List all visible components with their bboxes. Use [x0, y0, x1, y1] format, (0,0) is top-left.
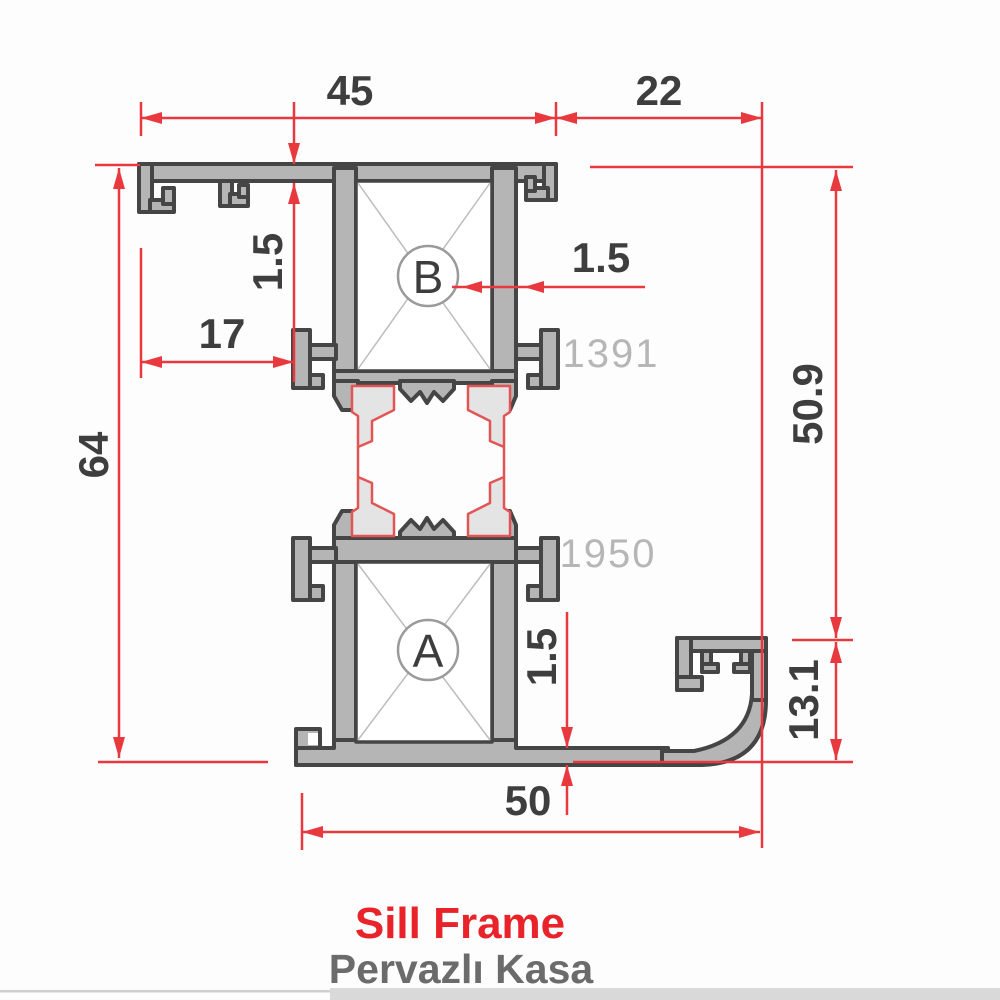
profile-code-bottom: 1950: [560, 532, 657, 576]
insulator-strip-left: [352, 386, 394, 536]
top-left-fin-head: [293, 330, 310, 388]
dim-label-17: 17: [199, 310, 246, 357]
chamber-a-label: A: [413, 625, 444, 677]
right-cap-curl: [526, 177, 535, 191]
dim-label-509: 50.9: [784, 363, 831, 445]
bottom-divider-thin: [0, 990, 330, 993]
top-right-fin-stem: [516, 345, 542, 359]
bottom-divider-band: [330, 988, 1000, 1000]
insulator-strip-right: [468, 386, 510, 536]
arrow-15-b-outer: [524, 281, 544, 293]
dim-label-15-top: 1.5: [244, 233, 291, 291]
thermal-break-insulators: [352, 386, 510, 536]
top-tooth-middle: [400, 381, 454, 403]
foot-hook-notch: [308, 733, 318, 745]
dim-label-15-a: 1.5: [518, 628, 565, 686]
dim-label-50: 50: [505, 777, 552, 824]
dim-label-22: 22: [636, 67, 683, 114]
nose-head-lip: [677, 677, 702, 690]
dim-label-131: 13.1: [780, 659, 827, 741]
b-right-wall: [492, 168, 516, 383]
bot-left-fin-foot: [310, 586, 323, 600]
technical-drawing-page: B A 45: [0, 0, 1000, 1000]
drawing-title-tr: Pervazlı Kasa: [329, 946, 595, 992]
dim-label-64: 64: [70, 431, 117, 478]
sill-frame-drawing: B A 45: [0, 0, 1000, 1000]
drawing-title-en: Sill Frame: [355, 899, 565, 948]
bot-right-fin-stem: [516, 548, 542, 562]
nose-head-rib-left-foot: [702, 664, 718, 672]
top-right-fin-foot: [528, 375, 541, 388]
dim-label-15-b: 1.5: [572, 234, 630, 281]
nose-head-rib-right-foot: [734, 664, 750, 672]
mid-hook-curl: [239, 185, 248, 197]
a-left-wall: [334, 562, 356, 750]
a-top-wall: [334, 538, 516, 562]
top-left-fin-stem: [310, 345, 336, 359]
top-left-fin-foot: [310, 375, 323, 388]
chamber-interiors: B A: [356, 181, 492, 742]
dim-label-45: 45: [327, 67, 374, 114]
nose-curve: [662, 694, 766, 765]
profile-code-top: 1391: [563, 332, 660, 376]
bot-right-fin-head: [541, 538, 558, 600]
bot-left-fin-head: [293, 538, 310, 600]
top-right-fin-head: [541, 330, 558, 388]
a-right-wall: [492, 562, 516, 748]
chamber-b-label: B: [413, 251, 444, 303]
bot-right-fin-foot: [528, 586, 541, 600]
bot-left-fin-stem: [310, 548, 336, 562]
left-cap-curl: [163, 188, 174, 204]
